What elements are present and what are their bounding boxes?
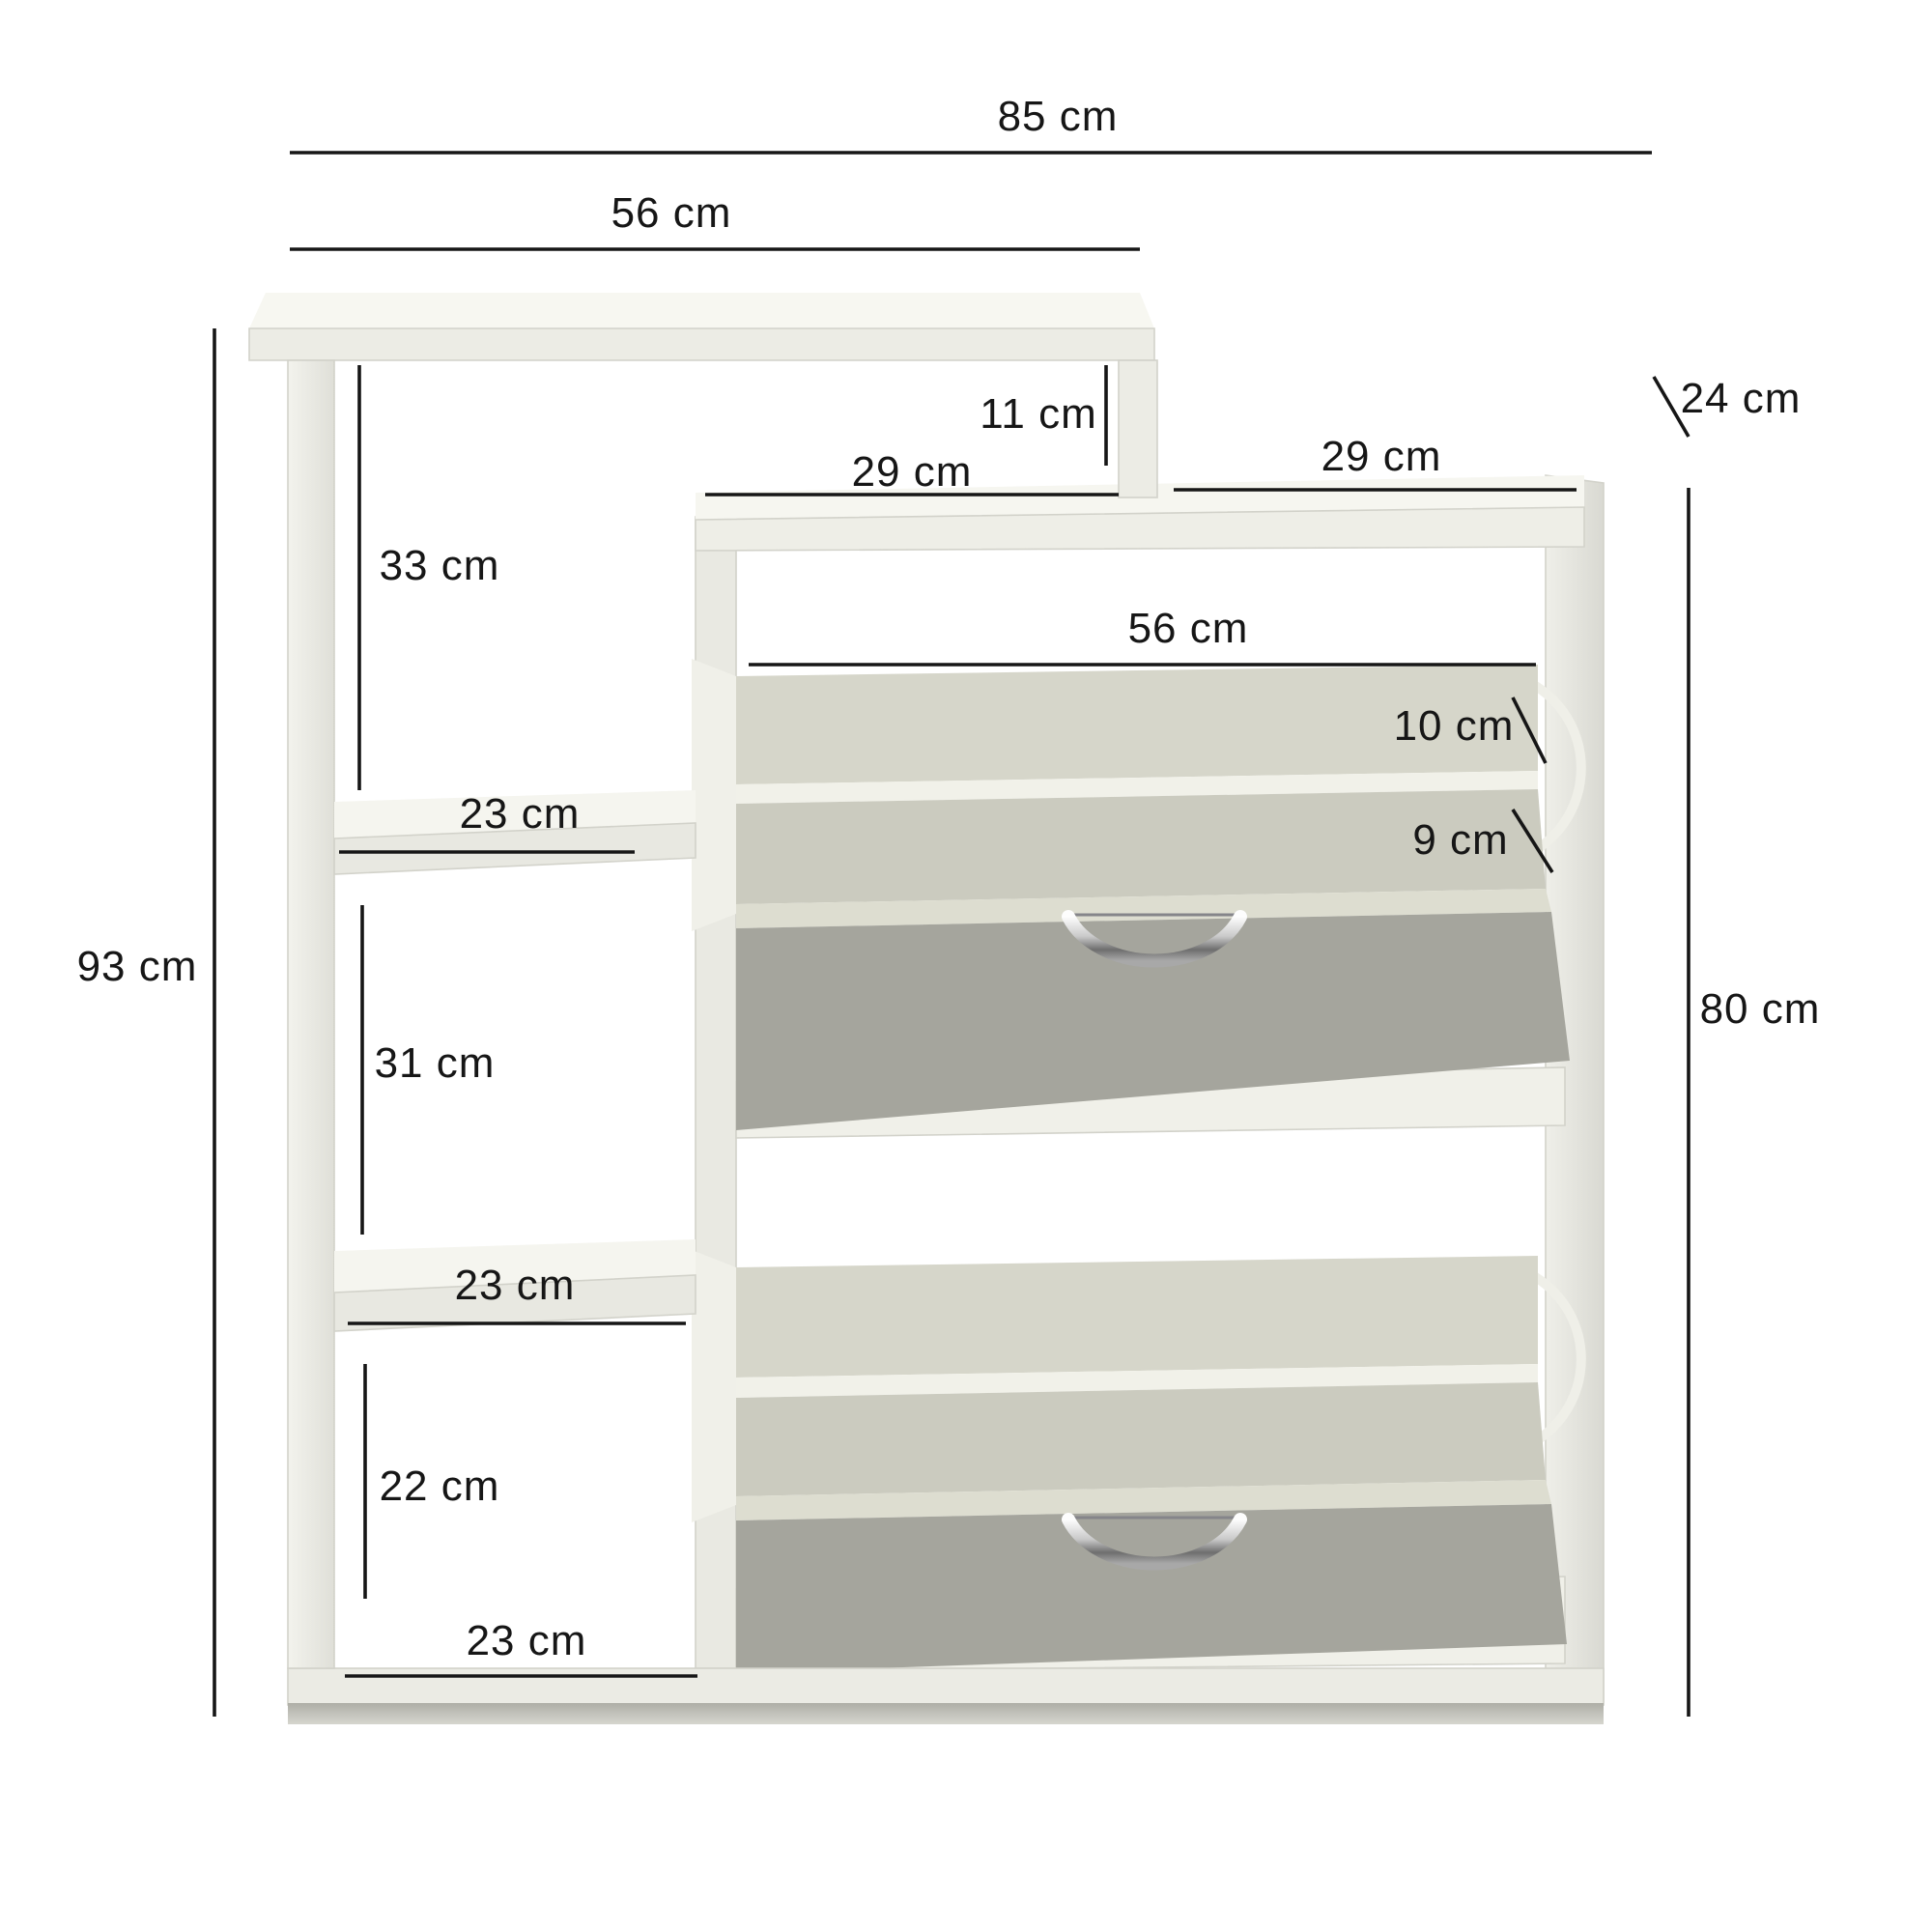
dim-top-panel-width-label: 56 cm bbox=[611, 189, 732, 237]
dim-depth-label: 24 cm bbox=[1681, 375, 1802, 422]
lower-flap-left-cheek bbox=[692, 1250, 736, 1522]
dim-top-left-half-label: 29 cm bbox=[852, 448, 973, 496]
dim-upper-compartment-label: 33 cm bbox=[380, 542, 500, 589]
lower-flap-front bbox=[736, 1504, 1567, 1673]
lower-flap bbox=[692, 1250, 1581, 1673]
base-plinth bbox=[288, 1668, 1604, 1705]
lower-flap-interior-back bbox=[736, 1256, 1538, 1378]
lower-flap-interior-front bbox=[736, 1382, 1546, 1496]
left-unit-top-front bbox=[249, 328, 1154, 360]
dim-left-height-label: 93 cm bbox=[77, 943, 198, 990]
dim-flap-opening-label: 56 cm bbox=[1128, 605, 1249, 652]
dim-shelf1-depth-label: 23 cm bbox=[460, 790, 581, 838]
dim-base-depth-label: 23 cm bbox=[467, 1617, 587, 1664]
upper-flap-left-cheek bbox=[692, 659, 736, 931]
shoe-cabinet bbox=[692, 475, 1604, 1702]
dim-bottom-compartment-label: 22 cm bbox=[380, 1463, 500, 1510]
dim-back-lip-label: 10 cm bbox=[1394, 702, 1515, 750]
dim-top-right-half-label: 29 cm bbox=[1321, 433, 1442, 480]
product-dimension-diagram: 85 cm 56 cm 24 cm 11 cm 29 cm 29 cm 33 c… bbox=[0, 0, 1932, 1932]
dim-cabinet-height-label: 80 cm bbox=[1700, 985, 1821, 1033]
diagram-canvas: 85 cm 56 cm 24 cm 11 cm 29 cm 29 cm 33 c… bbox=[0, 0, 1932, 1932]
left-unit-left-post bbox=[288, 360, 334, 1668]
dim-step-gap-label: 11 cm bbox=[980, 390, 1097, 438]
base-shadow bbox=[288, 1703, 1604, 1724]
left-unit-step-post bbox=[1119, 360, 1157, 497]
dim-front-lip-label: 9 cm bbox=[1412, 816, 1508, 864]
left-unit-top-face bbox=[249, 293, 1154, 328]
dim-overall-width-label: 85 cm bbox=[998, 93, 1119, 140]
dim-shelf2-depth-label: 23 cm bbox=[455, 1262, 576, 1309]
dim-middle-compartment-label: 31 cm bbox=[375, 1039, 496, 1087]
